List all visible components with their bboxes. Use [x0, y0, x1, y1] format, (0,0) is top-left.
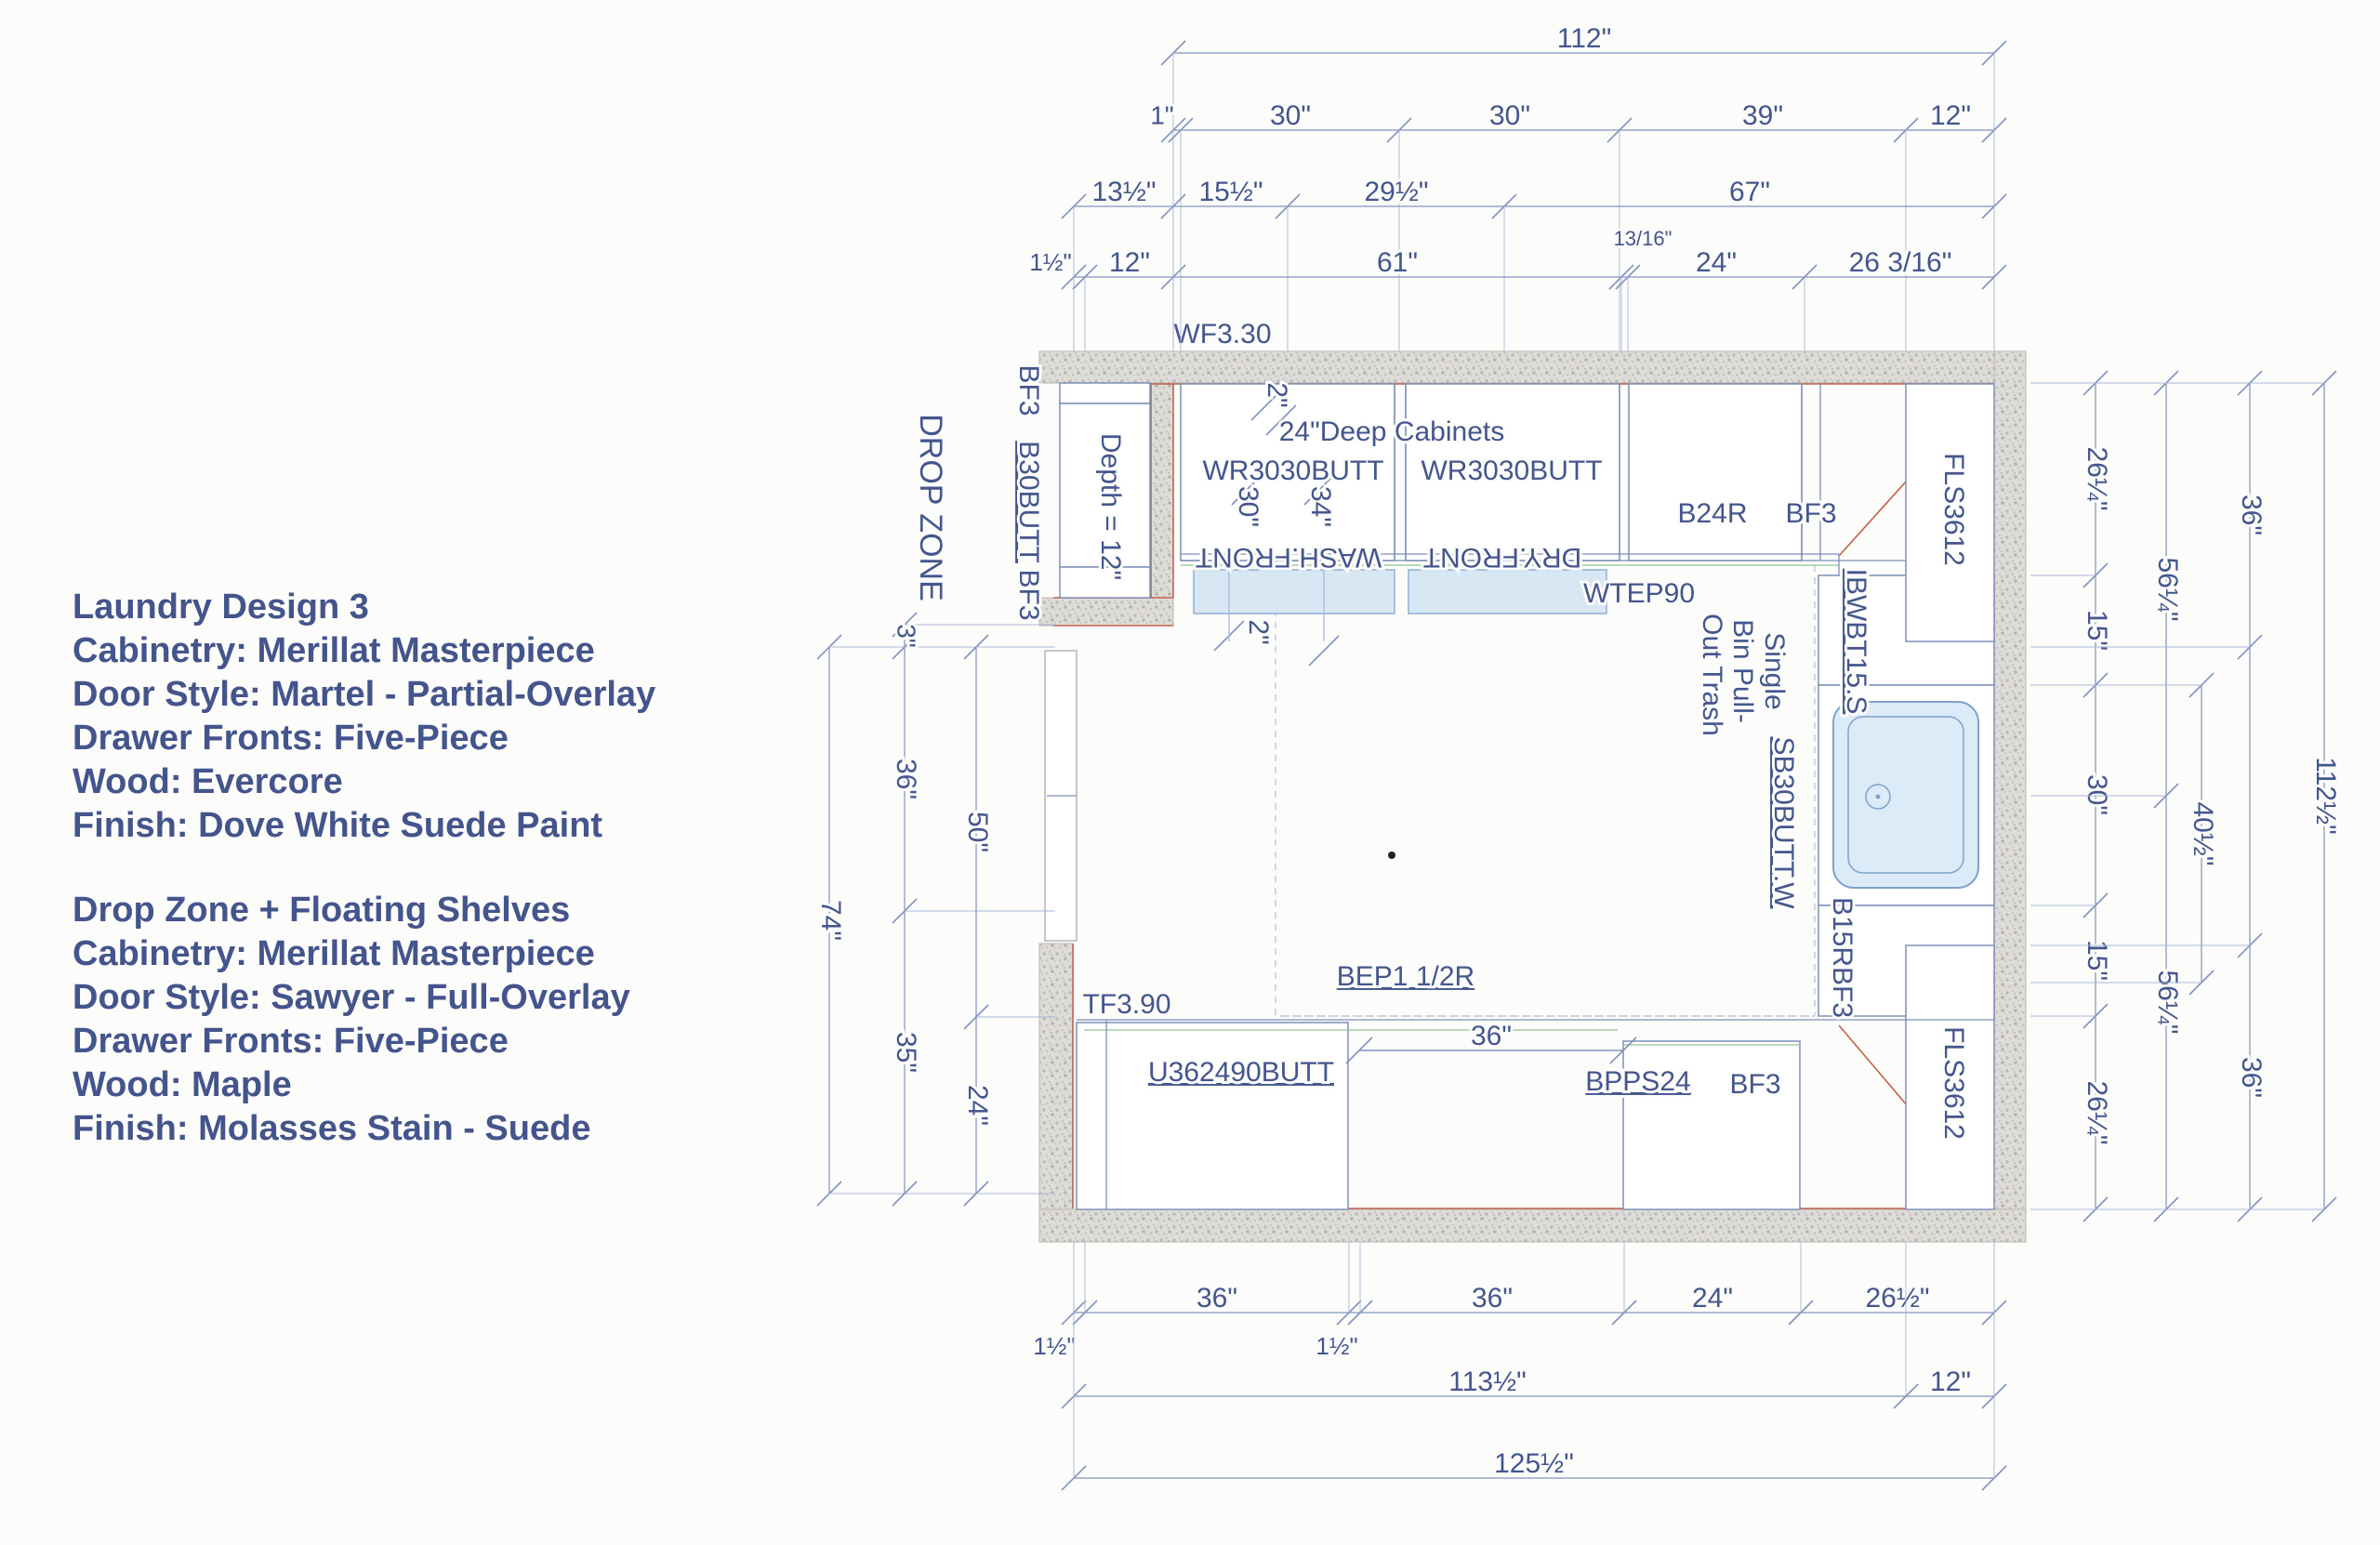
wall-right	[1994, 351, 2026, 1242]
cabinet-label: B30BUTT	[1013, 441, 1044, 563]
sink	[1833, 702, 1978, 888]
cabinet-label: DRY.FRONT	[1423, 542, 1582, 573]
dim-label: 26½"	[1865, 1283, 1929, 1314]
dim-label: 36"	[1472, 1283, 1513, 1314]
cabinet-label: 30"	[1233, 486, 1263, 527]
cabinet-label: BF3	[1013, 364, 1044, 416]
dim-label: 30"	[1489, 100, 1530, 131]
dim-label: 36"	[891, 759, 921, 799]
cabinet-label: 2"	[1243, 619, 1274, 644]
dim-col: 40½"	[2030, 673, 2218, 995]
dim-label: 13½"	[1091, 177, 1156, 207]
dim-row: 113½"12"	[1062, 1242, 2006, 1408]
center-reference-dot	[1388, 852, 1395, 859]
cabinet-label: WTEP90	[1583, 578, 1695, 609]
dim-label: 39"	[1742, 100, 1783, 131]
dim-col: 36"36"	[2030, 371, 2267, 1221]
dim-label: 56¼"	[2152, 557, 2183, 621]
laundry-design-plan-page: Laundry Design 3 Cabinetry: Merillat Mas…	[0, 0, 2380, 1545]
dim-label: 24"	[962, 1085, 993, 1126]
dim-label: 67"	[1729, 177, 1770, 207]
dim-label: 29½"	[1364, 177, 1428, 207]
reference	[1388, 852, 1395, 859]
wall-lower-left	[1039, 944, 1073, 1209]
cabinet-b24r	[1629, 384, 1802, 561]
dim-label: 1½"	[1316, 1332, 1357, 1360]
dim-label: 50"	[962, 812, 993, 852]
dim-label: 61"	[1377, 247, 1418, 278]
cabinet-label: 34"	[1305, 486, 1336, 527]
cabinet-label: Depth = 12"	[1095, 433, 1126, 580]
cabinet-label: BF3	[1013, 569, 1044, 620]
wall-nook-east	[1151, 383, 1173, 598]
dim-label: 112½"	[2310, 757, 2341, 835]
wall-nook-bottom	[1039, 598, 1173, 626]
washer-front	[1194, 570, 1395, 614]
cabinet-label: FLS3612	[1938, 1026, 1969, 1140]
dim-col: 112½"	[2030, 371, 2341, 1221]
dim-label: 24"	[1696, 247, 1737, 278]
cabinet-label: FLS3612	[1938, 453, 1969, 566]
wall-top	[1039, 351, 2026, 383]
wall-bottom	[1039, 1209, 2026, 1242]
dim-col: 74"	[815, 635, 1055, 1206]
dim-label: 30"	[1270, 100, 1311, 131]
dim-label: 112"	[1557, 23, 1611, 54]
cabinet-label: BEP1 1/2R	[1337, 961, 1474, 992]
dim-label: 125½"	[1494, 1448, 1574, 1479]
cabinet-label: 36"	[1471, 1021, 1512, 1051]
cabinet-label: TF3.90	[1082, 989, 1170, 1020]
dim-label: 26¼"	[2082, 446, 2112, 510]
cabinet-label: IBWBT15.S	[1841, 569, 1871, 715]
dim-label: 13/16"	[1614, 227, 1673, 250]
cabinet-label: WF3.30	[1173, 319, 1271, 350]
dim-row: 1"30"30"39"12"	[1150, 100, 2006, 351]
cabinet-label: BF3	[1785, 498, 1836, 529]
cabinet-label: WASH.FRONT	[1196, 542, 1382, 573]
dim-label: 30"	[2082, 774, 2112, 815]
dim-label: 12"	[1930, 100, 1971, 131]
dim-label: 26¼"	[2082, 1080, 2112, 1144]
dim-label: 35"	[891, 1032, 921, 1073]
appliances	[1194, 570, 1606, 614]
cabinet-label: Out Trash	[1697, 614, 1727, 736]
cabinet-label: Bin Pull-	[1727, 619, 1758, 723]
dim-label: 12"	[1109, 247, 1150, 278]
cabinet-label: 2"	[1262, 382, 1292, 407]
dim-row: 125½"	[1062, 1242, 2006, 1490]
dim-label: 36"	[2236, 1057, 2267, 1098]
dimensions: 112"1"30"30"39"12"13½"15½"29½"67"1½"12"6…	[815, 23, 2341, 1490]
cabinet-label: DROP ZONE	[913, 414, 948, 601]
cabinet-label: U362490BUTT	[1148, 1057, 1334, 1088]
dim-row: 1½"36"1½"36"24"26½"	[1033, 1242, 2006, 1360]
dim-col: 26¼"15"30"15"26¼"	[2030, 371, 2112, 1221]
dim-label: 1"	[1150, 100, 1174, 129]
dim-label: 113½"	[1448, 1367, 1527, 1397]
cabinet-label: 24"Deep Cabinets	[1279, 416, 1504, 447]
cabinet-label: WR3030BUTT	[1421, 456, 1602, 486]
cabinet-label: B24R	[1677, 498, 1747, 529]
sink-drain-dot	[1876, 795, 1881, 799]
dryer-front	[1408, 570, 1606, 614]
cabinet-label: BPPS24	[1585, 1066, 1690, 1097]
dim-label: 24"	[1692, 1283, 1733, 1314]
floor-plan-drawing: WF3.3024"Deep CabinetsWR3030BUTTWR3030BU…	[0, 0, 2380, 1545]
dim-label: 15½"	[1198, 177, 1263, 207]
cabinet-label: Single	[1759, 632, 1790, 709]
cabinet-u362490butt	[1077, 1023, 1348, 1209]
dim-label: 15"	[2082, 940, 2112, 981]
dim-label: 1½"	[1029, 248, 1071, 276]
dim-label: 26 3/16"	[1849, 247, 1952, 278]
dim-label: 12"	[1930, 1367, 1971, 1397]
cabinet-label: WR3030BUTT	[1202, 456, 1383, 486]
cabinet-label: BF3	[1729, 1069, 1780, 1100]
cabinet-label: SB30BUTT.W	[1768, 736, 1799, 909]
cabinet-label: B15RBF3	[1827, 897, 1858, 1018]
dim-label: 15"	[2082, 610, 2112, 651]
dim-label: 36"	[1197, 1283, 1237, 1314]
filler-bf3-top	[1060, 383, 1150, 403]
dim-label: 56¼"	[2152, 970, 2183, 1034]
dim-label: 1½"	[1033, 1332, 1075, 1360]
dim-label: 74"	[815, 900, 846, 941]
dim-label: 36"	[2236, 495, 2267, 535]
dim-label: 3"	[892, 624, 921, 648]
dim-label: 40½"	[2188, 801, 2218, 865]
